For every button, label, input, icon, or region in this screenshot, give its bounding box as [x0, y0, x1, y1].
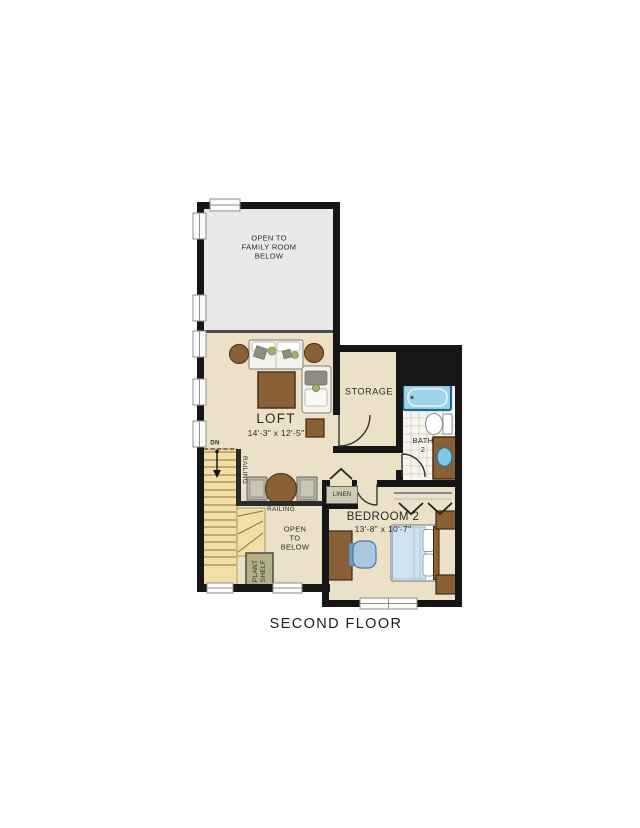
label-railing-vertical: RAILING — [240, 456, 248, 484]
room-label-bath: BATH 2 — [413, 436, 434, 454]
lounge-chair — [302, 366, 331, 413]
dining-chair-left — [247, 477, 267, 500]
room-dims-bedroom: 13'-8" x 10'-7" — [355, 524, 412, 534]
loft-divider-beam — [204, 330, 333, 333]
label-railing-horizontal: RAILING — [267, 506, 295, 514]
room-label-linen: LINEN — [333, 492, 352, 498]
page-title: SECOND FLOOR — [270, 616, 403, 632]
room-label-open-family: OPEN TO FAMILY ROOM BELOW — [242, 233, 297, 260]
side-table-right — [305, 344, 324, 363]
floor-plan-drawing — [0, 0, 640, 828]
room-dims-loft: 14'-3" x 12'-5" — [248, 428, 305, 438]
small-table — [306, 419, 324, 437]
desk-chair — [349, 541, 376, 568]
label-plant-shelf: PLANT SHELF — [252, 560, 268, 582]
floor-open-to-family-room — [200, 205, 337, 333]
room-label-bedroom: BEDROOM 2 — [347, 510, 420, 524]
bathtub-icon — [403, 385, 451, 410]
sofa — [249, 340, 303, 369]
toilet-icon — [426, 414, 453, 435]
room-label-storage: STORAGE — [345, 387, 393, 398]
floor-plan-page: OPEN TO FAMILY ROOM BELOW LOFT 14'-3" x … — [0, 0, 640, 828]
side-table-left — [230, 345, 249, 364]
room-label-loft: LOFT — [256, 411, 295, 427]
round-table — [266, 474, 297, 505]
coffee-table — [258, 372, 295, 408]
label-open-to-below: OPEN TO BELOW — [281, 524, 310, 551]
vanity-sink — [433, 437, 456, 479]
desk — [328, 531, 352, 580]
nightstand-bottom — [436, 575, 456, 594]
dining-chair-right — [297, 477, 317, 500]
linen-closet: LINEN — [326, 486, 358, 504]
label-stairs-down: DN — [210, 440, 219, 447]
